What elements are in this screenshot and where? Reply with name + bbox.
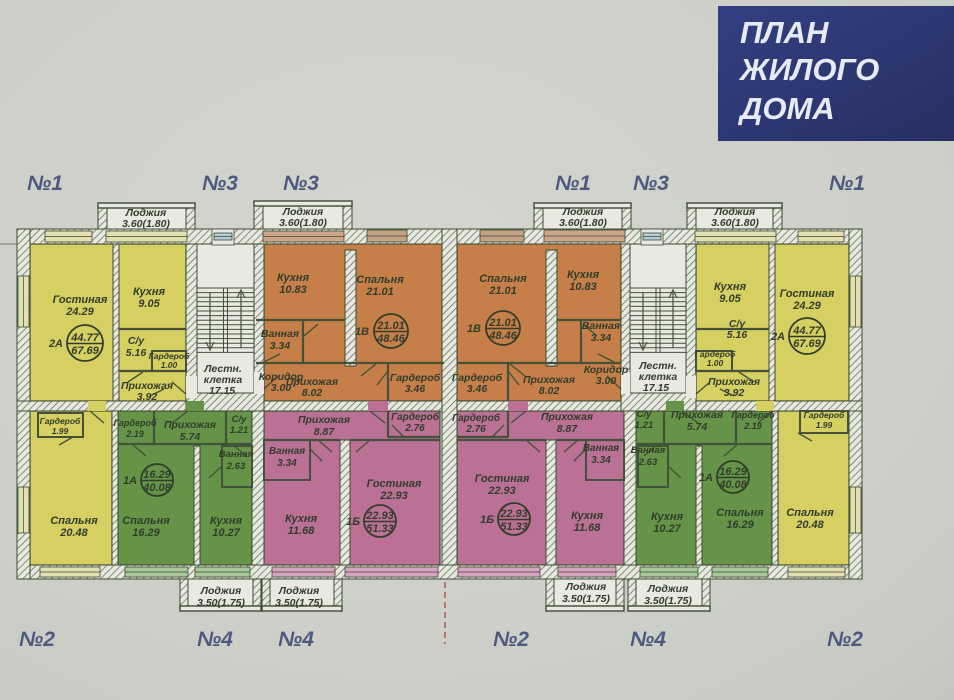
svg-text:ПЛАН: ПЛАН bbox=[740, 15, 829, 50]
svg-text:Прихожая: Прихожая bbox=[671, 409, 723, 421]
svg-text:10.83: 10.83 bbox=[569, 281, 597, 293]
svg-text:Гардероб: Гардероб bbox=[40, 416, 81, 426]
svg-text:22.93: 22.93 bbox=[379, 490, 408, 502]
svg-text:20.48: 20.48 bbox=[59, 527, 88, 539]
svg-text:Ванная: Ванная bbox=[583, 443, 619, 454]
svg-text:3.00: 3.00 bbox=[596, 375, 617, 387]
svg-text:24.29: 24.29 bbox=[792, 300, 821, 312]
svg-text:9.05: 9.05 bbox=[138, 298, 160, 310]
svg-text:№3: №3 bbox=[283, 172, 319, 195]
svg-text:5.16: 5.16 bbox=[727, 329, 748, 341]
svg-text:Спальня: Спальня bbox=[716, 507, 764, 519]
svg-text:3.92: 3.92 bbox=[724, 387, 745, 399]
svg-text:1.99: 1.99 bbox=[816, 420, 833, 430]
svg-text:Лоджия: Лоджия bbox=[200, 585, 241, 597]
svg-text:Кухня: Кухня bbox=[133, 286, 166, 298]
svg-text:10.27: 10.27 bbox=[212, 527, 240, 539]
svg-text:40.08: 40.08 bbox=[718, 479, 747, 491]
svg-text:10.83: 10.83 bbox=[279, 284, 307, 296]
svg-text:67.69: 67.69 bbox=[793, 338, 821, 350]
svg-text:Кухня: Кухня bbox=[571, 510, 604, 522]
svg-text:1.99: 1.99 bbox=[52, 426, 69, 436]
svg-text:Гостиная: Гостиная bbox=[780, 288, 835, 300]
svg-text:2А: 2А bbox=[770, 331, 785, 343]
svg-text:Гостиная: Гостиная bbox=[475, 473, 530, 485]
svg-text:22.93: 22.93 bbox=[499, 508, 528, 520]
svg-text:Лоджия: Лоджия bbox=[565, 581, 606, 593]
svg-text:2А: 2А bbox=[48, 338, 63, 350]
svg-text:Кухня: Кухня bbox=[210, 515, 243, 527]
svg-text:№4: №4 bbox=[278, 628, 314, 651]
svg-text:Лоджия: Лоджия bbox=[278, 585, 319, 597]
svg-text:21.01: 21.01 bbox=[488, 317, 517, 329]
svg-text:1.21: 1.21 bbox=[635, 420, 654, 431]
svg-text:3.50(1.75): 3.50(1.75) bbox=[562, 593, 610, 605]
svg-text:3.50(1.75): 3.50(1.75) bbox=[275, 597, 323, 609]
svg-text:Кухня: Кухня bbox=[567, 269, 600, 281]
svg-text:3.46: 3.46 bbox=[405, 383, 426, 395]
svg-text:3.60(1.80): 3.60(1.80) bbox=[122, 218, 170, 230]
svg-text:9.05: 9.05 bbox=[719, 293, 741, 305]
svg-text:3.34: 3.34 bbox=[591, 455, 611, 466]
svg-text:Ванная: Ванная bbox=[631, 445, 666, 456]
svg-text:3.60(1.80): 3.60(1.80) bbox=[279, 217, 327, 229]
svg-text:1.00: 1.00 bbox=[161, 360, 178, 370]
svg-text:3.34: 3.34 bbox=[270, 340, 291, 352]
svg-text:22.93: 22.93 bbox=[365, 510, 394, 522]
svg-text:Прихожая: Прихожая bbox=[164, 419, 216, 431]
svg-text:8.87: 8.87 bbox=[314, 426, 336, 438]
svg-text:№2: №2 bbox=[19, 628, 55, 651]
svg-text:11.68: 11.68 bbox=[288, 525, 316, 537]
svg-text:№1: №1 bbox=[829, 172, 865, 195]
svg-text:Прихожая: Прихожая bbox=[541, 411, 593, 423]
svg-text:1А: 1А bbox=[699, 472, 713, 484]
svg-text:1А: 1А bbox=[123, 475, 137, 487]
svg-text:17.15: 17.15 bbox=[209, 385, 235, 397]
svg-text:ДОМА: ДОМА bbox=[737, 91, 835, 126]
svg-text:3.34: 3.34 bbox=[277, 458, 297, 469]
svg-text:21.01: 21.01 bbox=[376, 320, 405, 332]
svg-text:ЖИЛОГО: ЖИЛОГО bbox=[738, 52, 879, 87]
svg-text:Кухня: Кухня bbox=[651, 511, 684, 523]
svg-text:Гардероб: Гардероб bbox=[113, 418, 156, 428]
svg-text:51.33: 51.33 bbox=[500, 521, 528, 533]
svg-text:20.48: 20.48 bbox=[795, 519, 824, 531]
svg-text:№4: №4 bbox=[630, 628, 666, 651]
svg-text:Ванная: Ванная bbox=[582, 320, 620, 332]
svg-text:5.74: 5.74 bbox=[687, 421, 708, 433]
svg-text:№2: №2 bbox=[493, 628, 529, 651]
svg-text:5.16: 5.16 bbox=[126, 347, 147, 359]
svg-text:Гардероб: Гардероб bbox=[452, 412, 501, 424]
svg-text:16.29: 16.29 bbox=[143, 469, 171, 481]
svg-text:16.29: 16.29 bbox=[719, 466, 747, 478]
svg-text:48.46: 48.46 bbox=[488, 330, 517, 342]
svg-text:Кухня: Кухня bbox=[277, 272, 310, 284]
svg-text:№1: №1 bbox=[555, 172, 591, 195]
svg-text:3.60(1.80): 3.60(1.80) bbox=[711, 217, 759, 229]
svg-text:8.02: 8.02 bbox=[302, 387, 323, 399]
svg-text:51.33: 51.33 bbox=[366, 523, 394, 535]
svg-text:8.02: 8.02 bbox=[539, 385, 560, 397]
svg-text:1В: 1В bbox=[355, 326, 369, 338]
svg-text:Ванная: Ванная bbox=[261, 328, 299, 340]
svg-text:2.19: 2.19 bbox=[125, 429, 144, 439]
svg-text:2.76: 2.76 bbox=[465, 424, 486, 435]
svg-text:№1: №1 bbox=[27, 172, 63, 195]
svg-text:Гардероб: Гардероб bbox=[804, 410, 845, 420]
svg-text:Ванная: Ванная bbox=[219, 449, 254, 460]
svg-text:№2: №2 bbox=[827, 628, 863, 651]
svg-text:Гардероб: Гардероб bbox=[391, 411, 440, 423]
svg-text:№4: №4 bbox=[197, 628, 233, 651]
svg-text:11.68: 11.68 bbox=[574, 522, 602, 534]
svg-text:1Б: 1Б bbox=[346, 516, 360, 528]
svg-text:17.15: 17.15 bbox=[643, 382, 669, 394]
svg-text:22.93: 22.93 bbox=[487, 485, 516, 497]
svg-text:16.29: 16.29 bbox=[726, 519, 754, 531]
svg-text:10.27: 10.27 bbox=[653, 523, 681, 535]
svg-text:3.46: 3.46 bbox=[467, 383, 488, 395]
svg-text:1.21: 1.21 bbox=[230, 425, 249, 436]
svg-text:44.77: 44.77 bbox=[70, 332, 99, 344]
svg-text:1Б: 1Б bbox=[480, 514, 494, 526]
svg-text:Спальня: Спальня bbox=[786, 507, 834, 519]
svg-text:Спальня: Спальня bbox=[122, 515, 170, 527]
svg-text:2.63: 2.63 bbox=[638, 457, 658, 468]
svg-text:8.87: 8.87 bbox=[557, 423, 579, 435]
svg-text:3.60(1.80): 3.60(1.80) bbox=[559, 217, 607, 229]
svg-text:3.50(1.75): 3.50(1.75) bbox=[197, 597, 245, 609]
svg-text:№3: №3 bbox=[633, 172, 669, 195]
svg-text:Кухня: Кухня bbox=[285, 513, 318, 525]
svg-text:21.01: 21.01 bbox=[488, 285, 517, 297]
svg-text:5.74: 5.74 bbox=[180, 431, 201, 443]
svg-text:2.63: 2.63 bbox=[226, 461, 246, 472]
svg-text:48.46: 48.46 bbox=[376, 333, 405, 345]
svg-text:Прихожая: Прихожая bbox=[298, 414, 350, 426]
svg-text:67.69: 67.69 bbox=[71, 345, 99, 357]
svg-text:С/у: С/у bbox=[232, 414, 248, 425]
svg-text:3.50(1.75): 3.50(1.75) bbox=[644, 595, 692, 607]
svg-text:3.34: 3.34 bbox=[591, 332, 612, 344]
svg-text:21.01: 21.01 bbox=[365, 286, 394, 298]
svg-text:С/у: С/у bbox=[128, 335, 146, 347]
svg-text:Гостиная: Гостиная bbox=[367, 478, 422, 490]
svg-text:Лоджия: Лоджия bbox=[647, 583, 688, 595]
svg-text:Ванная: Ванная bbox=[269, 446, 305, 457]
svg-text:Спальня: Спальня bbox=[479, 273, 527, 285]
svg-text:№3: №3 bbox=[202, 172, 238, 195]
svg-text:2.76: 2.76 bbox=[404, 423, 425, 434]
svg-text:40.08: 40.08 bbox=[142, 482, 171, 494]
svg-text:16.29: 16.29 bbox=[132, 527, 160, 539]
svg-text:1В: 1В bbox=[467, 323, 481, 335]
svg-text:Гардероб: Гардероб bbox=[731, 410, 774, 420]
svg-text:1.00: 1.00 bbox=[707, 358, 724, 368]
svg-text:С/у: С/у bbox=[637, 409, 653, 420]
svg-text:Гостиная: Гостиная bbox=[53, 294, 108, 306]
svg-text:24.29: 24.29 bbox=[65, 306, 94, 318]
svg-text:Кухня: Кухня bbox=[714, 281, 747, 293]
svg-text:3.92: 3.92 bbox=[137, 391, 158, 403]
svg-text:Спальня: Спальня bbox=[356, 274, 404, 286]
svg-text:2.19: 2.19 bbox=[743, 421, 762, 431]
svg-text:Спальня: Спальня bbox=[50, 515, 98, 527]
svg-text:44.77: 44.77 bbox=[792, 325, 821, 337]
